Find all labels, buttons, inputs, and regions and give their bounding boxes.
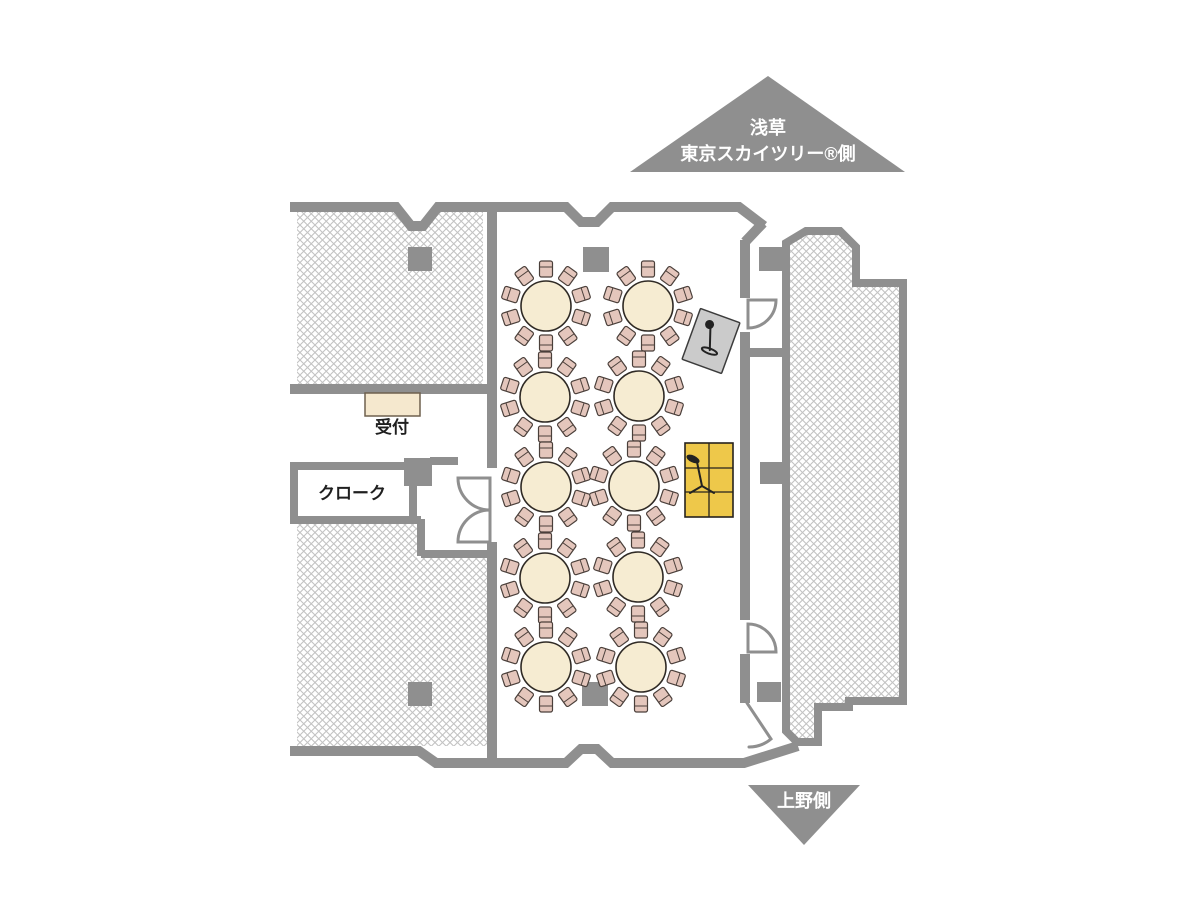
chair — [603, 286, 622, 303]
chair — [514, 326, 534, 347]
chair — [514, 266, 534, 287]
chair — [571, 377, 590, 394]
round-table — [593, 532, 683, 622]
chair — [664, 580, 683, 597]
door-right-top — [748, 300, 776, 328]
reception-area: 受付 — [365, 393, 420, 437]
cloakroom-label: クローク — [318, 484, 386, 503]
chair — [557, 538, 577, 559]
chair — [616, 326, 636, 347]
chair — [557, 357, 577, 378]
chair — [616, 266, 636, 287]
chair — [660, 326, 680, 347]
chair — [540, 442, 553, 458]
chair — [651, 416, 671, 437]
table-top — [520, 372, 570, 422]
chair — [667, 670, 686, 687]
table-top — [609, 461, 659, 511]
round-table — [501, 442, 591, 532]
chair — [593, 580, 612, 597]
chair — [594, 376, 613, 393]
chair — [539, 352, 552, 368]
chair — [660, 489, 679, 506]
chair — [609, 687, 629, 708]
corridor-stub — [759, 247, 785, 271]
chair — [651, 356, 671, 377]
chair — [589, 489, 608, 506]
round-table — [594, 351, 684, 441]
chair — [513, 538, 533, 559]
chair — [664, 557, 683, 574]
chair — [665, 376, 684, 393]
chair — [501, 647, 520, 664]
top-direction-label-line1: 浅草 — [750, 117, 786, 138]
round-table — [500, 533, 590, 623]
double-door-left-top — [458, 478, 490, 510]
chair — [571, 581, 590, 598]
chair — [632, 532, 645, 548]
wall-corridor-crossing — [745, 348, 788, 357]
table-top — [623, 281, 673, 331]
chair — [674, 309, 693, 326]
round-table — [603, 261, 693, 351]
chair — [632, 606, 645, 622]
chair — [571, 558, 590, 575]
chair — [558, 447, 578, 468]
chair — [653, 627, 673, 648]
chair — [558, 687, 578, 708]
chair — [594, 399, 613, 416]
wall-bottom — [290, 746, 798, 763]
chair — [558, 326, 578, 347]
round-table — [596, 622, 686, 712]
chair — [539, 533, 552, 549]
chair — [602, 506, 622, 527]
chair — [606, 537, 626, 558]
chair — [607, 416, 627, 437]
reception-desk — [365, 393, 420, 416]
chair — [500, 581, 519, 598]
chair — [572, 670, 591, 687]
chair — [500, 400, 519, 417]
chair — [501, 467, 520, 484]
banquet-tables — [500, 261, 693, 712]
chair — [500, 558, 519, 575]
chair — [558, 507, 578, 528]
round-table — [589, 441, 679, 531]
stage-riser — [685, 443, 733, 517]
bottom-direction-marker: 上野側 — [748, 785, 860, 845]
chair — [513, 598, 533, 619]
chair — [557, 417, 577, 438]
floorplan-svg: 浅草 東京スカイツリー®側 上野側 — [0, 0, 1200, 924]
pillar — [583, 247, 609, 272]
chair — [650, 597, 670, 618]
chair — [513, 357, 533, 378]
chair — [501, 286, 520, 303]
chair — [667, 647, 686, 664]
chair — [607, 356, 627, 377]
chair — [572, 647, 591, 664]
double-door-left-bottom — [458, 510, 490, 542]
chair — [572, 286, 591, 303]
chair — [558, 627, 578, 648]
chair — [540, 261, 553, 277]
chair — [633, 351, 646, 367]
chair — [513, 417, 533, 438]
round-table — [500, 352, 590, 442]
chair — [540, 335, 553, 351]
chair — [501, 309, 520, 326]
chair — [653, 687, 673, 708]
chair — [665, 399, 684, 416]
table-top — [520, 553, 570, 603]
bottom-direction-label: 上野側 — [777, 790, 831, 811]
chair — [501, 490, 520, 507]
chair — [609, 627, 629, 648]
table-top — [521, 642, 571, 692]
chair — [660, 266, 680, 287]
chair — [589, 466, 608, 483]
reception-label: 受付 — [375, 417, 409, 437]
chair — [539, 607, 552, 623]
chair — [660, 466, 679, 483]
chair — [572, 467, 591, 484]
chair — [602, 446, 622, 467]
corridor-stub — [757, 682, 781, 702]
chair — [514, 507, 534, 528]
round-table — [501, 622, 591, 712]
table-top — [521, 281, 571, 331]
chair — [593, 557, 612, 574]
door-right-middle — [748, 624, 776, 652]
chair — [628, 441, 641, 457]
storage-area-right — [786, 231, 903, 742]
chair — [501, 670, 520, 687]
chair — [572, 309, 591, 326]
chair — [540, 622, 553, 638]
table-top — [614, 371, 664, 421]
top-direction-label-line2: 東京スカイツリー®側 — [680, 143, 855, 164]
chair — [540, 696, 553, 712]
chair — [635, 622, 648, 638]
chair — [500, 377, 519, 394]
chair — [572, 490, 591, 507]
corridor-stub — [760, 462, 788, 484]
chair — [646, 506, 666, 527]
chair — [603, 309, 622, 326]
chair — [650, 537, 670, 558]
table-top — [521, 462, 571, 512]
top-direction-marker: 浅草 東京スカイツリー®側 — [630, 76, 905, 172]
table-top — [613, 552, 663, 602]
chair — [642, 335, 655, 351]
chair — [606, 597, 626, 618]
floor-plan-page: 浅草 東京スカイツリー®側 上野側 — [0, 0, 1200, 924]
pillar — [404, 458, 432, 486]
chair — [540, 516, 553, 532]
chair — [633, 425, 646, 441]
chair — [557, 598, 577, 619]
chair — [539, 426, 552, 442]
chair — [646, 446, 666, 467]
storage-area-top-left — [297, 212, 483, 385]
chair — [514, 687, 534, 708]
cloakroom-area: クローク — [318, 484, 386, 503]
table-top — [616, 642, 666, 692]
chair — [558, 266, 578, 287]
pillar — [408, 247, 432, 271]
round-table — [501, 261, 591, 351]
chair — [674, 286, 693, 303]
chair — [635, 696, 648, 712]
chair — [571, 400, 590, 417]
pillar — [408, 682, 432, 706]
chair — [596, 670, 615, 687]
chair — [514, 627, 534, 648]
chair — [514, 447, 534, 468]
door-right-bottom — [747, 703, 771, 747]
chair — [628, 515, 641, 531]
chair — [596, 647, 615, 664]
chair — [642, 261, 655, 277]
